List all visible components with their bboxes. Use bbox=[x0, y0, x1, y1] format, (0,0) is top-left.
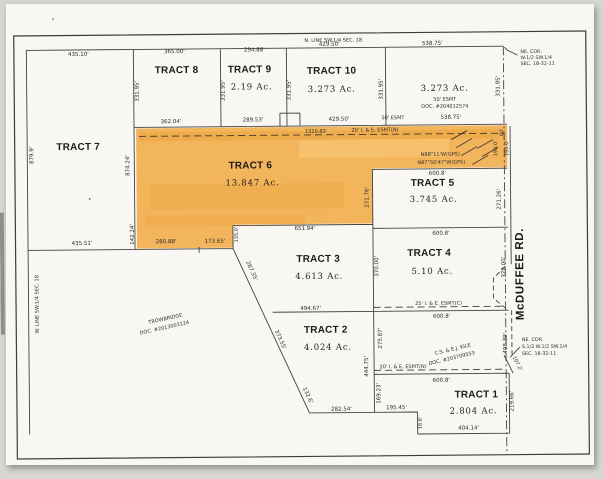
se-corner-line3: SEC. 18-32-11 bbox=[522, 351, 556, 357]
ne-corner-line3: SEC. 18-32-11 bbox=[520, 61, 554, 67]
dim-tract5-east: 271.26' bbox=[497, 189, 503, 210]
esmt-center-label: 25' I. & E. ESMT(C) bbox=[415, 301, 462, 307]
dim-331-e: 331.95' bbox=[496, 76, 502, 97]
ne-corner-line1: NE. COR. bbox=[520, 49, 542, 55]
tract7-label: TRACT 7 bbox=[56, 142, 100, 153]
dim-tract5-west: 271.76' bbox=[365, 187, 371, 208]
tract5-label: TRACT 5 bbox=[411, 178, 455, 189]
ne-corner-note: NE. COR. W.1/2 SW.1/4 SEC. 18-32-11 bbox=[520, 49, 554, 67]
tract1-label: TRACT 1 bbox=[455, 389, 499, 400]
dim-strip-1520: 1520.83' bbox=[305, 129, 327, 135]
dim-tract10-bottom: 429.50' bbox=[329, 117, 350, 123]
dim-tract8-top: 365.00' bbox=[164, 49, 185, 55]
dim-tract6-step: 135.0' bbox=[234, 227, 240, 243]
dim-tract1-east: 219.66' bbox=[509, 391, 515, 412]
bearing-2: N87°50'47"W(GPS) bbox=[417, 160, 465, 166]
east-parcel-esmt: 50' ESMT bbox=[433, 97, 457, 103]
tract6-acres: 13.847 Ac. bbox=[225, 178, 279, 188]
se-corner-note: NE. COR. S.1/2 W.1/2 SW.1/4 SEC. 18-32-1… bbox=[522, 337, 567, 357]
tract5-acres: 3.745 Ac. bbox=[410, 195, 458, 205]
tract9-label: TRACT 9 bbox=[228, 64, 272, 75]
dim-tract6-bottom1: 280.88' bbox=[156, 239, 177, 245]
dim-tract1-bottom: 404.14' bbox=[458, 425, 479, 431]
dim-kile-upper: 275.87' bbox=[378, 328, 384, 349]
dim-tract4-east: 370.00' bbox=[501, 257, 507, 278]
esmt-south-label: 20' I. & E. ESMT(N) bbox=[380, 364, 427, 370]
dim-tract2-bottom: 282.54' bbox=[331, 407, 352, 413]
tract2-label: TRACT 2 bbox=[304, 325, 348, 336]
dim-tract9-top: 294.88' bbox=[244, 47, 265, 53]
tract4-acres: 5.10 Ac. bbox=[411, 267, 453, 277]
dim-tract1-top: 600.8' bbox=[433, 378, 450, 384]
dim-331-c: 331.95' bbox=[287, 80, 293, 101]
tract6-label: TRACT 6 bbox=[228, 160, 272, 171]
dim-tract7-top: 435.10' bbox=[68, 52, 89, 58]
dim-road-498: 498.39' bbox=[503, 333, 509, 354]
tract3-label: TRACT 3 bbox=[296, 254, 340, 265]
dim-tract6-west-lower: 142.24' bbox=[130, 224, 136, 245]
se-corner-line2: S.1/2 W.1/2 SW.1/4 bbox=[522, 344, 567, 350]
dim-331-d: 331.95' bbox=[379, 79, 385, 100]
tract2-acres: 4.024 Ac. bbox=[304, 343, 352, 353]
dim-tract2-west-lower: 132.6' bbox=[301, 386, 314, 404]
dim-road-107: 107.2' bbox=[511, 355, 523, 372]
bearing-1: N88°11'W(GPS) bbox=[421, 152, 460, 158]
east-parcel-doc: DOC. #204012574 bbox=[421, 104, 468, 110]
tract8-label: TRACT 8 bbox=[155, 65, 199, 76]
dim-tract2-east: 444.75' bbox=[364, 356, 370, 377]
dim-tract3-west: 267.35' bbox=[244, 260, 258, 281]
scanned-plat-map: N. LINE SW.1/4 SEC. 18 435.10' 365.00' 2… bbox=[0, 0, 604, 479]
esmt-fifty-label: 50' ESMT bbox=[381, 115, 405, 121]
east-parcel-acres: 3.273 Ac. bbox=[421, 84, 469, 94]
tract3-acres: 4.613 Ac. bbox=[295, 272, 343, 282]
dim-331-b: 331.95' bbox=[221, 80, 227, 101]
dim-road-60: 60' bbox=[499, 128, 505, 136]
dim-tract4-top: 600.8' bbox=[432, 231, 449, 237]
dim-tract6-west: 874.24' bbox=[125, 155, 131, 176]
dim-tract3-bottom: 494.67' bbox=[300, 306, 321, 312]
dim-south-195: 195.45' bbox=[386, 405, 407, 411]
dim-road-190-west: 190.0' bbox=[493, 140, 499, 156]
plat-drawing: N. LINE SW.1/4 SEC. 18 435.10' 365.00' 2… bbox=[0, 0, 604, 479]
dim-tract8-bottom: 362.04' bbox=[161, 119, 182, 125]
tract4-label: TRACT 4 bbox=[407, 248, 451, 259]
west-line-label: W. LINE SW.1/4 SEC. 18 bbox=[34, 275, 41, 333]
dim-331-a: 331.95' bbox=[135, 81, 141, 102]
road-name-label: McDUFFEE RD. bbox=[514, 228, 527, 320]
ne-corner-line2: W.1/2 SW.1/4 bbox=[520, 55, 552, 61]
dim-tract2-west-upper: 373.55' bbox=[273, 329, 287, 350]
dim-east-parcel-top: 538.75' bbox=[422, 41, 443, 47]
dim-tract4-bottom: 600.8' bbox=[433, 314, 450, 320]
tract10-acres: 3.273 Ac. bbox=[308, 85, 356, 95]
dim-tract5-top: 600.8' bbox=[429, 171, 446, 177]
dim-kile-lower: 169.23' bbox=[376, 383, 382, 404]
dim-south-16: 16.6' bbox=[418, 417, 424, 430]
dim-tract3-top: 651.94' bbox=[294, 226, 315, 232]
dim-east-parcel-bottom: 538.75' bbox=[441, 115, 462, 121]
dim-tract10-top: 429.50' bbox=[319, 42, 340, 48]
dim-tract9-bottom: 289.53' bbox=[243, 117, 264, 123]
se-corner-line1: NE. COR. bbox=[522, 337, 544, 343]
tract10-label: TRACT 10 bbox=[307, 66, 357, 77]
tract1-acres: 2.804 Ac. bbox=[450, 406, 498, 416]
dim-tract4-west: 370.00' bbox=[374, 256, 380, 277]
esmt-north-label: 20' I. & E. ESMT(N) bbox=[351, 127, 398, 133]
dim-tract6-bottom2: 173.65' bbox=[205, 239, 226, 245]
dim-tract7-bottom: 435.51' bbox=[72, 241, 93, 247]
dim-road-190-east: 190.0' bbox=[504, 140, 510, 156]
tract9-acres: 2.19 Ac. bbox=[231, 82, 273, 92]
dim-tract7-west: 879.9' bbox=[29, 147, 35, 164]
